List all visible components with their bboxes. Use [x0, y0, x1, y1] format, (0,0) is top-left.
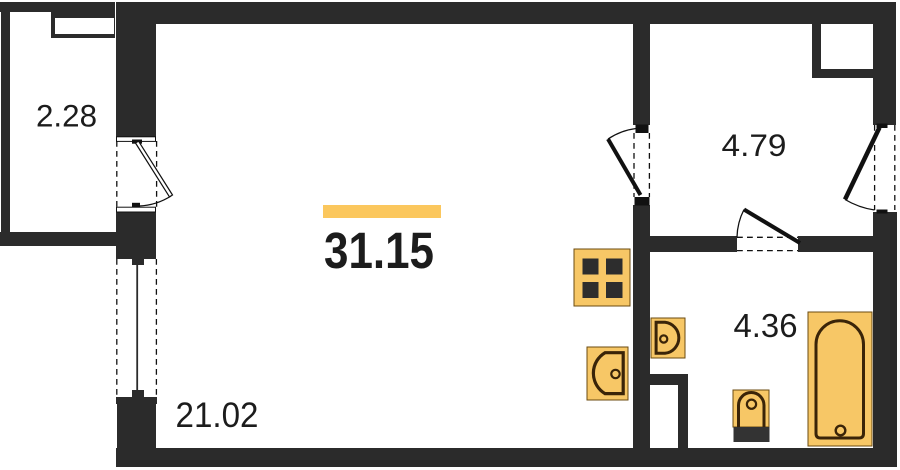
svg-text:2.28: 2.28 — [36, 97, 97, 133]
svg-text:4.79: 4.79 — [722, 127, 787, 163]
svg-text:31.15: 31.15 — [324, 222, 434, 279]
svg-text:21.02: 21.02 — [176, 395, 259, 435]
svg-text:4.36: 4.36 — [734, 307, 798, 344]
